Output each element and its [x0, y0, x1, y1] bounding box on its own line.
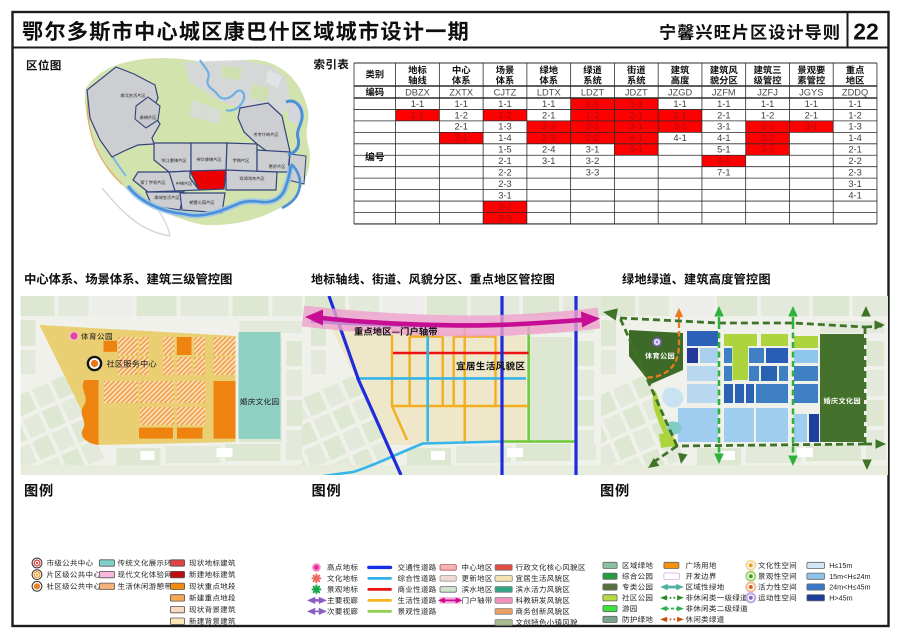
svg-text:3-1: 3-1: [630, 122, 643, 132]
svg-text:2-1: 2-1: [542, 110, 555, 120]
svg-text:7-1: 7-1: [717, 168, 730, 178]
svg-text:24m<H≤45m: 24m<H≤45m: [829, 583, 870, 592]
svg-text:5-1: 5-1: [717, 145, 730, 155]
svg-text:CJTZ: CJTZ: [494, 88, 517, 98]
svg-text:2-1: 2-1: [586, 122, 599, 132]
svg-text:2-4: 2-4: [542, 145, 555, 155]
svg-text:2-1: 2-1: [411, 110, 424, 120]
svg-text:1-5: 1-5: [498, 145, 511, 155]
svg-text:1-1: 1-1: [411, 99, 424, 109]
svg-text:2-1: 2-1: [630, 110, 643, 120]
svg-text:1-1: 1-1: [455, 99, 468, 109]
svg-text:JZFM: JZFM: [712, 88, 736, 98]
svg-text:ZDDQ: ZDDQ: [842, 88, 868, 98]
svg-text:2-1: 2-1: [498, 156, 511, 166]
svg-text:1-2: 1-2: [848, 110, 861, 120]
svg-text:3-3: 3-3: [586, 168, 599, 178]
svg-text:2-1: 2-1: [761, 122, 774, 132]
svg-text:4-1: 4-1: [848, 190, 861, 200]
svg-text:2-3: 2-3: [542, 133, 555, 143]
svg-text:2-2: 2-2: [498, 168, 511, 178]
svg-text:JDZT: JDZT: [625, 88, 648, 98]
svg-text:3-1: 3-1: [805, 122, 818, 132]
svg-text:6-1: 6-1: [717, 156, 730, 166]
svg-text:1-1: 1-1: [630, 99, 643, 109]
svg-text:3-1: 3-1: [542, 156, 555, 166]
svg-text:2-1: 2-1: [848, 145, 861, 155]
svg-text:1-1: 1-1: [498, 99, 511, 109]
svg-text:2-1: 2-1: [805, 110, 818, 120]
svg-text:1-1: 1-1: [761, 99, 774, 109]
svg-text:H>45m: H>45m: [829, 593, 852, 602]
svg-text:3-2: 3-2: [586, 156, 599, 166]
svg-text:4-1: 4-1: [673, 133, 686, 143]
svg-text:1-1: 1-1: [848, 99, 861, 109]
svg-text:2-1: 2-1: [717, 110, 730, 120]
svg-text:2-2: 2-2: [848, 156, 861, 166]
svg-text:5-1: 5-1: [630, 145, 643, 155]
svg-text:3-1: 3-1: [673, 122, 686, 132]
svg-text:1-1: 1-1: [586, 99, 599, 109]
svg-text:3-2: 3-2: [498, 202, 511, 212]
svg-text:1-1: 1-1: [673, 99, 686, 109]
svg-text:2-2: 2-2: [761, 133, 774, 143]
svg-text:1-2: 1-2: [586, 110, 599, 120]
svg-text:JZGD: JZGD: [668, 88, 693, 98]
svg-text:3-1: 3-1: [455, 133, 468, 143]
svg-text:4-1: 4-1: [630, 133, 643, 143]
svg-text:2-2: 2-2: [542, 122, 555, 132]
svg-text:4-1: 4-1: [717, 133, 730, 143]
svg-text:1-1: 1-1: [717, 99, 730, 109]
svg-text:2-1: 2-1: [455, 122, 468, 132]
svg-text:2-3: 2-3: [498, 179, 511, 189]
svg-text:3-1: 3-1: [848, 179, 861, 189]
svg-text:JGYS: JGYS: [799, 88, 823, 98]
svg-text:1-3: 1-3: [498, 122, 511, 132]
svg-text:1-3: 1-3: [848, 122, 861, 132]
svg-text:3-3: 3-3: [498, 213, 511, 223]
svg-text:1-4: 1-4: [848, 133, 861, 143]
svg-text:LDTX: LDTX: [537, 88, 561, 98]
svg-text:2-3: 2-3: [848, 168, 861, 178]
svg-text:2-1: 2-1: [673, 110, 686, 120]
svg-text:ZXTX: ZXTX: [449, 88, 473, 98]
svg-text:3-1: 3-1: [498, 190, 511, 200]
svg-text:1-2: 1-2: [455, 110, 468, 120]
svg-text:JZFJ: JZFJ: [757, 88, 778, 98]
svg-text:3-1: 3-1: [717, 122, 730, 132]
svg-text:1-4: 1-4: [498, 133, 511, 143]
svg-text:1-1: 1-1: [542, 99, 555, 109]
svg-text:22: 22: [853, 19, 879, 45]
svg-text:2-2: 2-2: [586, 133, 599, 143]
svg-text:LDZT: LDZT: [581, 88, 605, 98]
svg-text:3-1: 3-1: [761, 145, 774, 155]
svg-text:1-1: 1-1: [805, 99, 818, 109]
svg-text:H≤15m: H≤15m: [829, 561, 852, 570]
svg-text:1-2: 1-2: [761, 110, 774, 120]
svg-text:3-1: 3-1: [586, 145, 599, 155]
svg-text:1-2: 1-2: [498, 110, 511, 120]
svg-text:DBZX: DBZX: [405, 88, 430, 98]
svg-text:15m<H≤24m: 15m<H≤24m: [829, 572, 870, 581]
